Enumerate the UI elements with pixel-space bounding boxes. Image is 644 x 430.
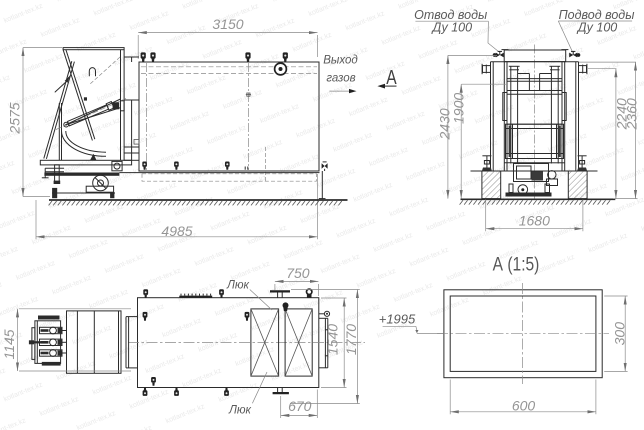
- svg-text:+1995: +1995: [379, 311, 416, 326]
- svg-text:2360: 2360: [623, 98, 639, 130]
- svg-text:Выход: Выход: [323, 55, 358, 67]
- svg-text:2575: 2575: [7, 102, 23, 134]
- svg-text:1540: 1540: [325, 324, 341, 355]
- svg-text:Люк: Люк: [226, 280, 250, 292]
- svg-text:1900: 1900: [450, 93, 466, 124]
- svg-text:1770: 1770: [343, 324, 359, 355]
- svg-text:А (1:5): А (1:5): [493, 253, 540, 275]
- svg-text:газов: газов: [326, 72, 355, 84]
- svg-text:Ду 100: Ду 100: [576, 21, 618, 35]
- svg-text:Люк: Люк: [228, 405, 252, 417]
- svg-text:Ду 100: Ду 100: [431, 21, 473, 35]
- svg-text:750: 750: [286, 265, 310, 281]
- svg-text:1145: 1145: [1, 329, 17, 359]
- svg-text:300: 300: [611, 322, 627, 346]
- svg-text:4985: 4985: [161, 223, 192, 239]
- svg-text:670: 670: [288, 398, 312, 414]
- svg-text:1680: 1680: [519, 213, 550, 229]
- svg-text:3150: 3150: [212, 16, 243, 32]
- svg-text:600: 600: [512, 398, 536, 414]
- svg-text:А: А: [386, 66, 396, 88]
